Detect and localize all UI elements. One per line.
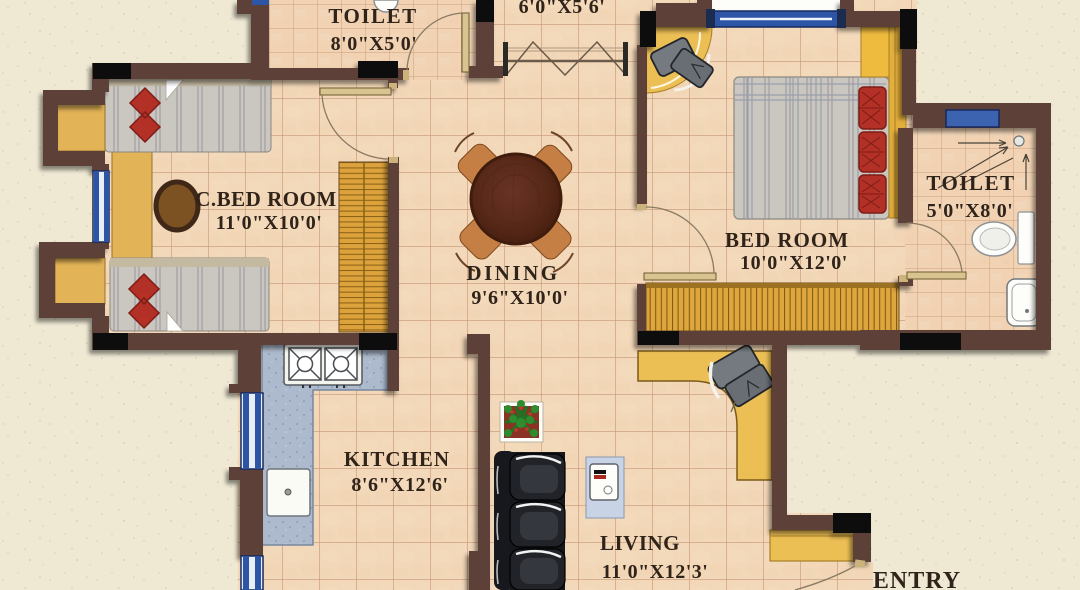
svg-text:LIVING: LIVING bbox=[600, 531, 680, 555]
svg-text:KITCHEN: KITCHEN bbox=[344, 447, 450, 471]
svg-text:TOILET: TOILET bbox=[328, 4, 417, 28]
svg-text:11'0"X12'3': 11'0"X12'3' bbox=[602, 561, 709, 583]
svg-text:10'0"X12'0': 10'0"X12'0' bbox=[740, 252, 848, 274]
svg-text:DINING: DINING bbox=[466, 261, 559, 285]
svg-text:ENTRY: ENTRY bbox=[873, 568, 961, 590]
svg-text:BED ROOM: BED ROOM bbox=[725, 228, 849, 252]
svg-text:6'0"X5'6': 6'0"X5'6' bbox=[519, 0, 606, 18]
svg-text:8'0"X5'0': 8'0"X5'0' bbox=[331, 33, 418, 55]
svg-text:5'0"X8'0': 5'0"X8'0' bbox=[927, 200, 1014, 222]
svg-text:C.BED ROOM: C.BED ROOM bbox=[195, 187, 337, 211]
svg-text:TOILET: TOILET bbox=[926, 171, 1015, 195]
svg-text:11'0"X10'0': 11'0"X10'0' bbox=[216, 212, 323, 234]
svg-text:9'6"X10'0': 9'6"X10'0' bbox=[471, 287, 568, 309]
svg-text:8'6"X12'6': 8'6"X12'6' bbox=[351, 474, 448, 496]
